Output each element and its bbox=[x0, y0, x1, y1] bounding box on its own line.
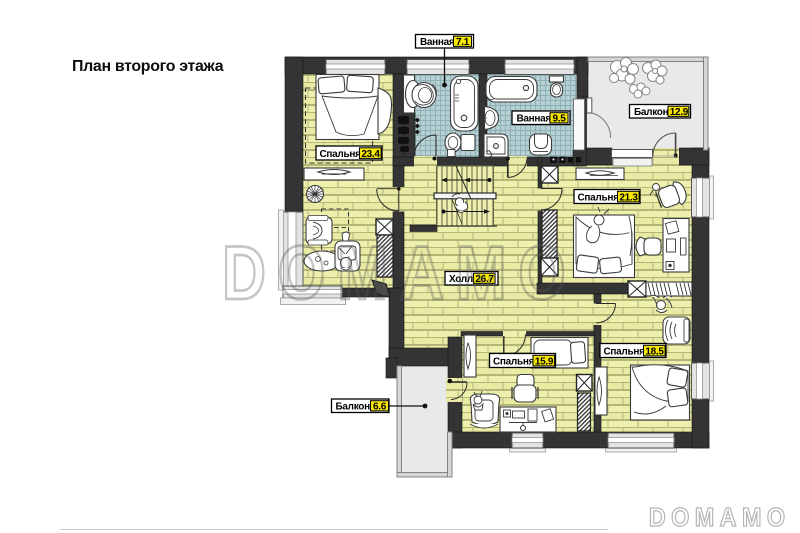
svg-text:23.4: 23.4 bbox=[361, 149, 380, 160]
svg-text:Ванная: Ванная bbox=[420, 37, 455, 48]
svg-text:План второго этажа: План второго этажа bbox=[72, 58, 224, 75]
svg-text:DOMAMO: DOMAMO bbox=[649, 504, 791, 532]
svg-text:Спальня: Спальня bbox=[578, 193, 620, 204]
svg-text:9.5: 9.5 bbox=[553, 114, 567, 125]
svg-text:Ванная: Ванная bbox=[517, 114, 552, 125]
svg-text:21.3: 21.3 bbox=[619, 193, 638, 204]
svg-text:18.5: 18.5 bbox=[645, 347, 664, 358]
svg-text:7.1: 7.1 bbox=[456, 37, 470, 48]
svg-text:6.6: 6.6 bbox=[373, 402, 387, 413]
svg-text:15.9: 15.9 bbox=[535, 357, 554, 368]
svg-text:Спальня: Спальня bbox=[493, 357, 535, 368]
svg-text:Балкон: Балкон bbox=[634, 107, 669, 118]
svg-text:Спальня: Спальня bbox=[320, 149, 362, 160]
svg-text:Балкон: Балкон bbox=[336, 402, 371, 413]
svg-text:Спальня: Спальня bbox=[604, 347, 646, 358]
svg-text:12.9: 12.9 bbox=[670, 107, 689, 118]
svg-text:DOMAMO: DOMAMO bbox=[222, 231, 578, 316]
